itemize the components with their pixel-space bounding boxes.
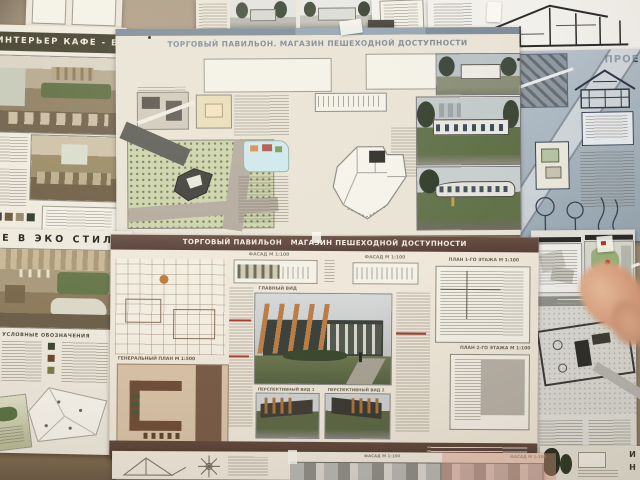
notes-column [228,456,268,476]
slat-ceiling [0,249,112,271]
swatch [16,213,24,221]
pendant-lights [19,269,53,278]
tape-tab [312,232,321,243]
tape-strip [596,235,613,252]
eco-interior-photo [0,249,112,329]
orange-fins [257,304,336,354]
perspective2-caption: ПЕРСПЕКТИВНЫЙ ВИД 2 [328,388,385,392]
pink-tint-overlay [442,453,556,480]
pavilion-building [461,64,501,79]
blueprint-site-plan [536,142,569,189]
perspective1-caption: ПЕРСПЕКТИВНЫЙ ВИД 1 [258,388,315,392]
red-note [229,355,249,357]
block-outline [173,309,215,339]
curved-building [435,181,515,197]
poster-top-bar [115,27,519,36]
blueprint-poster: ПРОЕК [516,49,640,243]
pergola-drawing [32,0,67,25]
mid-title: ТОРГОВЫЙ ПАВИЛЬОН МАГАЗИН ПЕШЕХОДНОЙ ДОС… [183,239,467,248]
zone-marker [262,144,272,151]
perspective-rendering-1 [256,394,318,438]
building-footprint [172,167,216,203]
general-plan-caption: ГЕНЕРАЛЬНЫЙ ПЛАН М 1:500 [118,358,195,363]
blueprint-floor-plan [581,111,634,146]
plan-lines [45,210,111,230]
cafe-title-bar: ИНТЕРЬЕР КАФЕ - БАРА [0,31,127,53]
cafe-photo-1 [0,55,120,134]
notes-block [0,168,27,207]
pavilion-rendering-1 [437,54,520,94]
pavilion-top-poster: ТОРГОВЫЙ ПАВИЛЬОН. МАГАЗИН ПЕШЕХОДНОЙ ДО… [115,27,520,237]
bar-counter [37,171,111,185]
site-highlight [205,103,223,117]
caption-line [138,87,186,91]
void-area [481,359,525,415]
text-block [199,4,227,30]
hedge [283,350,347,361]
tree [439,56,455,76]
plant-wall [57,272,109,295]
cafe-photo-2 [30,135,118,201]
site-shape [545,166,561,178]
right-text-column [395,293,430,433]
map-lines [539,250,577,286]
plan2-caption: ПЛАН 2-ГО ЭТАЖА М 1:100 [460,347,530,352]
long-elevation-drawing [315,93,387,112]
color-floor-plan-small [243,140,289,172]
tree [501,57,517,76]
district-map [535,244,581,292]
dimension-ticks [324,260,334,282]
swatch [0,212,2,220]
tables [8,112,108,127]
photo-of-poster-wall: ИНТЕРЬЕР КАФЕ - БАРА ТОРГОВЫЙ ПАВИЛЬО [0,0,640,480]
city-towers [439,103,461,117]
red-note [229,319,251,321]
zone-marker [250,145,258,151]
plan-lines [454,359,480,421]
building-block [318,7,356,20]
pin [517,58,520,61]
cafe-interior-poster: ИНТЕРЬЕР КАФЕ - БАРА [0,24,127,239]
legend-chip [47,367,54,374]
doodle-lines [578,470,618,478]
plant-shelf [41,83,111,100]
block [142,97,160,109]
glazing [356,267,412,279]
swatch [5,213,13,221]
floor-plan-1 [435,266,531,344]
plan1-caption: ПЛАН 1-ГО ЭТАЖА М 1:100 [449,259,519,264]
fins [352,398,380,413]
tape-strip [486,2,501,23]
window-mullions [237,264,279,278]
parking-row [143,433,183,439]
city-block-map [520,54,567,107]
mid-facade-1 [233,259,317,284]
pavilion-rendering-2 [417,97,520,165]
plan-lines [585,115,627,140]
tree [304,2,316,17]
pin [148,36,151,39]
axon-plants [0,406,18,423]
building-wing [129,421,181,431]
red-note [396,333,426,335]
tree [358,1,370,16]
elevation-lines [318,96,382,107]
mid-header-bar: ТОРГОВЫЙ ПАВИЛЬОН МАГАЗИН ПЕШЕХОДНОЙ ДОС… [111,235,539,253]
person [451,197,454,206]
cafe-title: ИНТЕРЬЕР КАФЕ - БАРА [0,37,127,49]
bottom-facade-caption: ФАСАД М 1:100 [364,454,400,458]
notes-block [0,136,28,163]
person [359,352,362,362]
landscape-dot [557,363,567,373]
floor-plan-2 [449,354,530,431]
tree-row [132,395,140,419]
pavilion-top-title: ТОРГОВЫЙ ПАВИЛЬОН. МАГАЗИН ПЕШЕХОДНОЙ ДО… [116,39,520,49]
legend-chip [48,343,55,350]
landscape-dot [552,339,563,350]
situation-map-dark [138,93,188,129]
orange-marker [159,275,168,284]
window [0,67,26,106]
pavilion-rendering-3 [417,167,520,230]
legend-right-column [61,342,108,383]
main-rendering [255,294,392,385]
zone-marker [275,146,282,152]
glazing [282,267,312,279]
general-plan-brown [117,365,228,444]
eco-site-plan-sketch [18,381,115,449]
perspective-rendering-2 [325,394,389,438]
pergola-drawing [72,0,117,26]
building-doodle [578,452,606,468]
legend-left-column [1,341,42,382]
bar-table [5,285,25,303]
swatch [27,213,35,221]
eco-legend-title: УСЛОВНЫЕ ОБОЗНАЧЕНИЯ [2,333,90,340]
long-building [433,119,509,135]
bottom-poster-fragment: ФАСАД М 1:100 ФАСАД М 1:100 [112,451,544,480]
material-swatches [0,212,38,223]
building-plan [592,332,611,345]
line-site-plan [115,259,226,356]
white-planter [51,298,107,315]
main-view-caption: ГЛАВНЫЙ ВИД [258,288,297,293]
shelving [51,67,93,81]
plan-lines [440,271,523,337]
tree [236,2,248,18]
legend-lines [238,176,288,222]
street-rendering [230,0,296,32]
window-band [439,186,509,192]
site-shape [541,148,559,162]
tape-tab [288,450,297,464]
pyramid-drawing [120,455,190,477]
situation-map-tinted [197,95,231,127]
text-column [234,95,289,135]
map-caption-bar [535,237,581,242]
axon-lines [0,425,25,444]
road-band [195,365,222,443]
hexagonal-floor-plan [327,143,410,223]
building-block [250,9,276,21]
eco-title: Е В ЭКО СТИЛЕ [2,234,123,246]
street-rendering [300,0,376,31]
dark-tree-blob [560,454,572,474]
facade-caption-1: ФАСАД М 1:100 [249,253,290,258]
block-outline [125,299,161,323]
legend-chip [48,355,55,362]
house-elevation-drawing [573,67,638,112]
compass-rose [198,455,220,477]
window-band [436,124,504,131]
facade-caption-2: ФАСАД М 1:100 [365,256,406,261]
pavilion-mid-poster: ТОРГОВЫЙ ПАВИЛЬОН МАГАЗИН ПЕШЕХОДНОЙ ДОС… [109,235,539,462]
facade-elevation-1 [204,58,332,93]
adjacent-poster-letters: ИН [628,450,636,476]
building-plan [574,340,592,368]
red-mark [601,241,606,245]
mid-facade-2 [352,262,418,284]
fins [265,398,295,414]
window [61,144,88,165]
hatch [520,54,567,107]
